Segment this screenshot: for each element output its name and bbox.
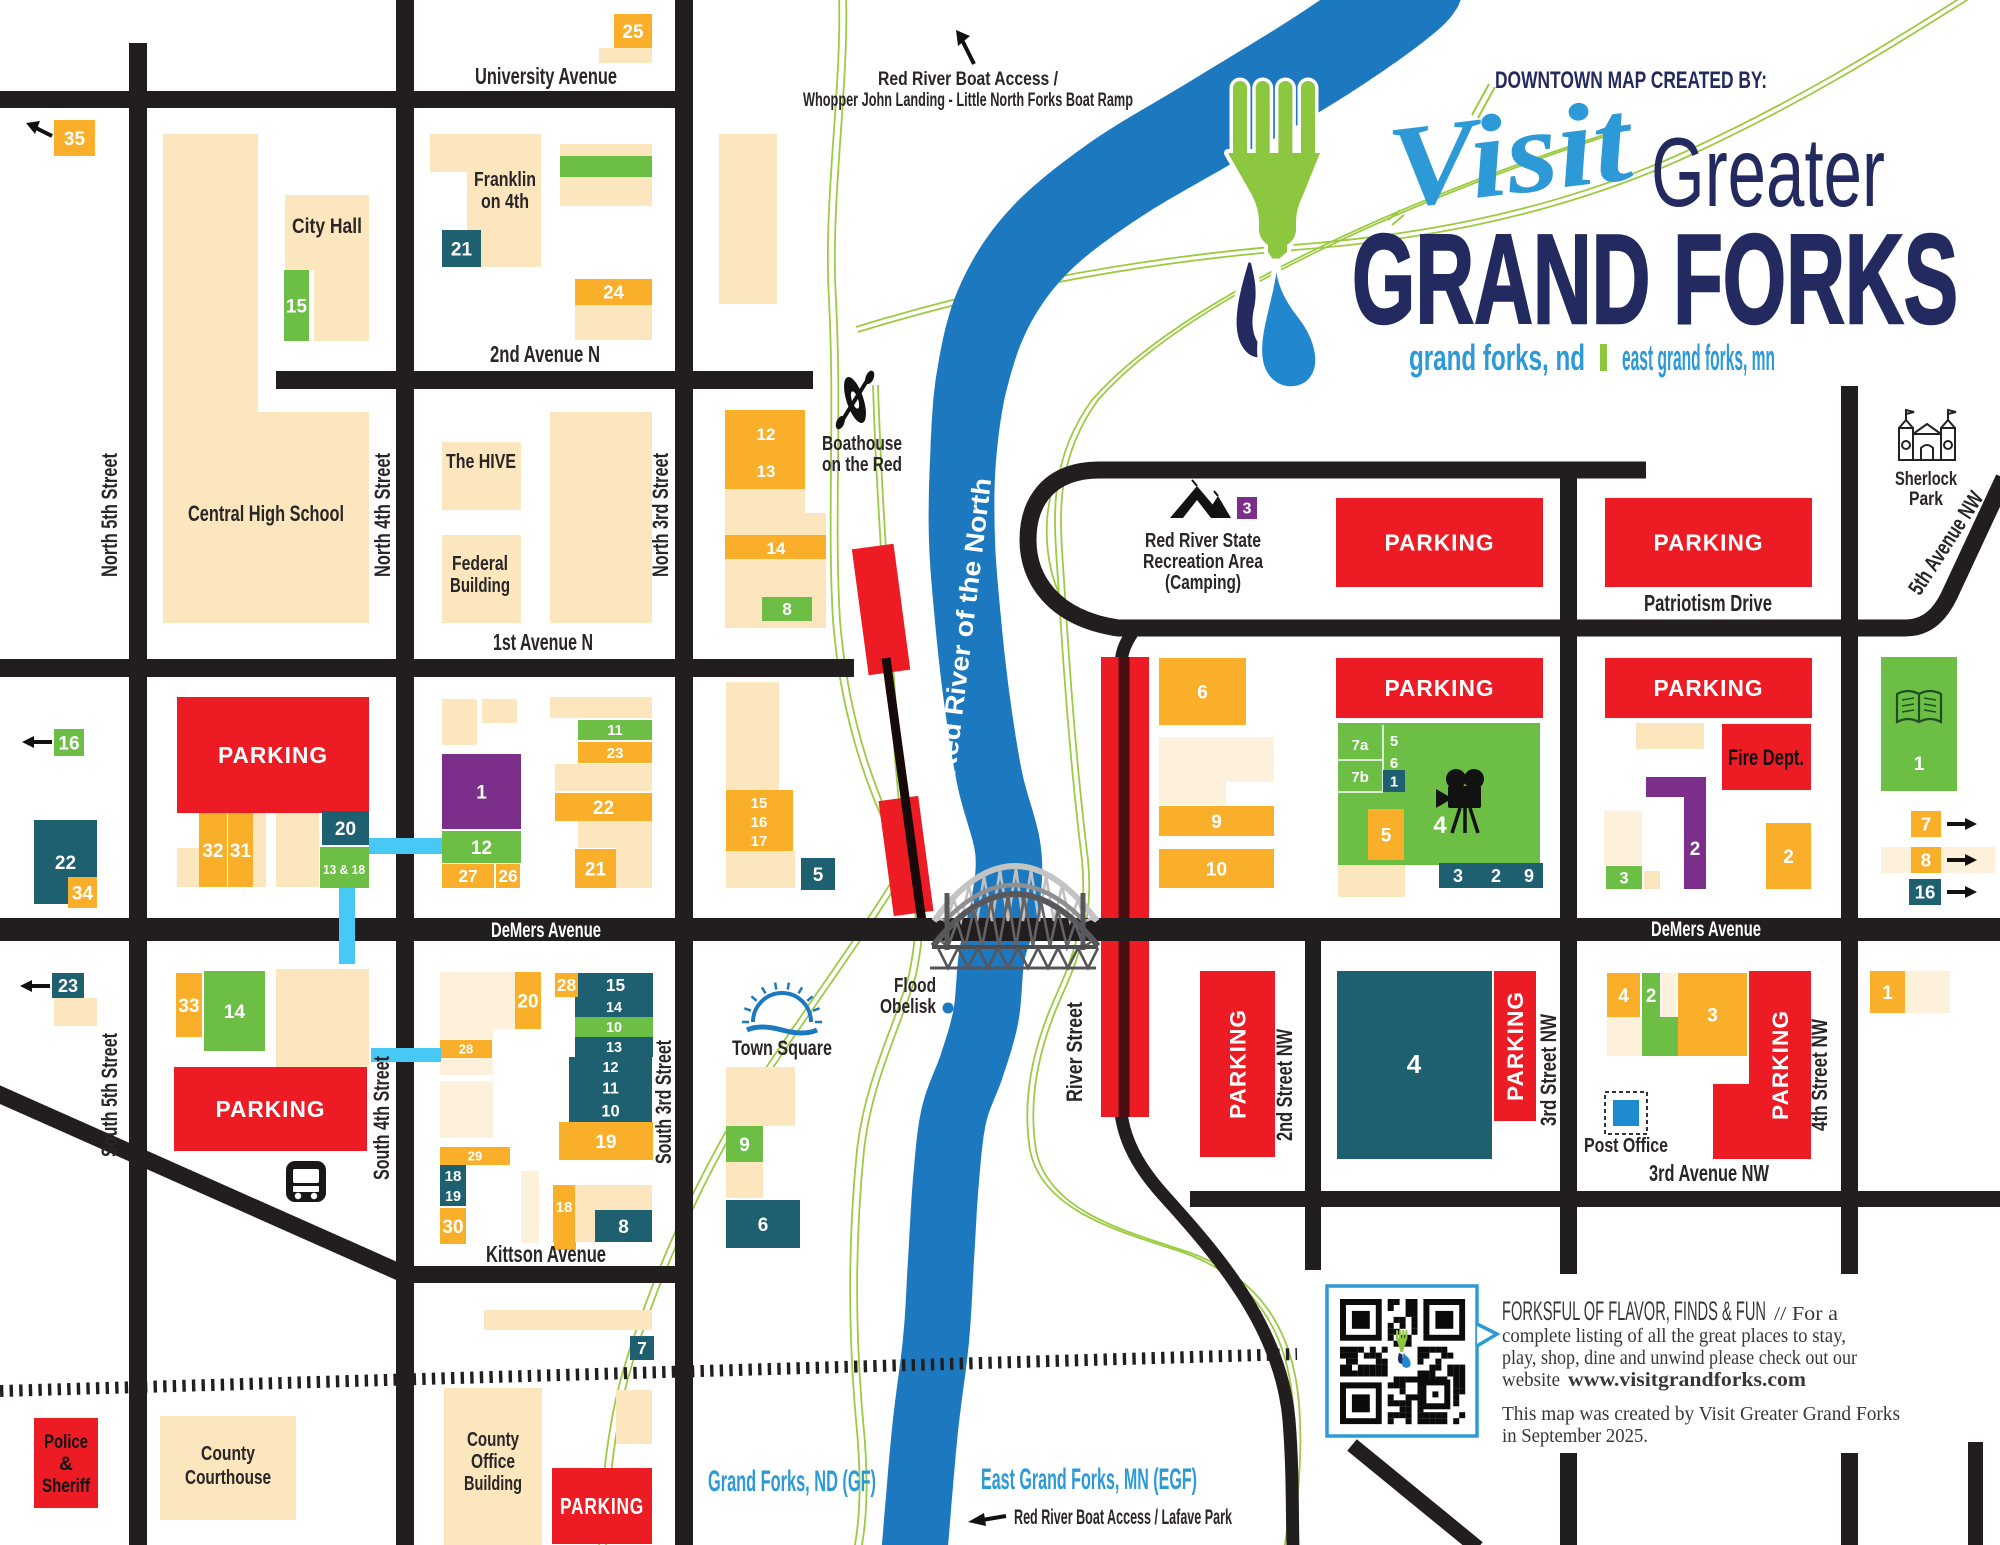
svg-text:7: 7 — [637, 1338, 647, 1358]
svg-text:South 5th Street: South 5th Street — [97, 1033, 122, 1157]
svg-text:30: 30 — [442, 1217, 463, 1238]
svg-text:12: 12 — [602, 1060, 618, 1076]
svg-text:Obelisk: Obelisk — [880, 996, 937, 1018]
svg-text:website: website — [1502, 1369, 1560, 1391]
svg-text:8: 8 — [618, 1217, 629, 1238]
svg-text:6: 6 — [1197, 682, 1208, 703]
svg-text:3: 3 — [1243, 501, 1252, 518]
svg-text:34: 34 — [72, 883, 94, 904]
svg-text:16: 16 — [751, 814, 768, 831]
svg-text:www.visitgrandforks.com: www.visitgrandforks.com — [1568, 1369, 1806, 1391]
svg-text:4th Street NW: 4th Street NW — [1807, 1019, 1832, 1131]
svg-text:Red River State: Red River State — [1145, 530, 1261, 552]
svg-text:2: 2 — [1646, 986, 1657, 1007]
svg-text:11: 11 — [607, 723, 622, 739]
svg-text:University Avenue: University Avenue — [475, 63, 617, 89]
svg-text:9: 9 — [739, 1135, 750, 1156]
svg-text:2nd Avenue N: 2nd Avenue N — [490, 341, 600, 367]
svg-text:in September 2025.: in September 2025. — [1502, 1425, 1648, 1447]
svg-text:15: 15 — [751, 795, 768, 812]
svg-text:32: 32 — [202, 841, 223, 862]
svg-text:PARKING: PARKING — [1226, 1009, 1251, 1119]
svg-text:9: 9 — [1211, 812, 1222, 833]
svg-text:Police: Police — [44, 1432, 88, 1453]
svg-text:8: 8 — [1921, 850, 1931, 871]
svg-text:2: 2 — [1783, 847, 1794, 868]
svg-text:9: 9 — [1524, 866, 1534, 886]
svg-text:10: 10 — [1206, 859, 1227, 880]
svg-text:Fire Dept.: Fire Dept. — [1728, 745, 1804, 770]
svg-text:The HIVE: The HIVE — [446, 451, 516, 473]
svg-text:13 & 18: 13 & 18 — [323, 862, 365, 877]
svg-text:PARKING: PARKING — [1654, 530, 1764, 556]
svg-text:Federal: Federal — [452, 553, 508, 575]
svg-text:PARKING: PARKING — [1768, 1010, 1793, 1120]
svg-text:County: County — [201, 1443, 256, 1465]
svg-text:12: 12 — [471, 838, 492, 859]
svg-text:DeMers Avenue: DeMers Avenue — [491, 919, 601, 942]
svg-text:South 3rd Street: South 3rd Street — [651, 1040, 676, 1164]
svg-text:10: 10 — [606, 1020, 622, 1036]
svg-text:North 3rd Street: North 3rd Street — [648, 453, 673, 577]
svg-text:PARKING: PARKING — [1503, 991, 1528, 1101]
svg-text:PARKING: PARKING — [560, 1493, 644, 1519]
svg-text:11: 11 — [602, 1081, 619, 1098]
svg-text:14: 14 — [767, 539, 786, 558]
svg-text:Kittson Avenue: Kittson Avenue — [486, 1241, 606, 1267]
svg-text:28: 28 — [459, 1042, 473, 1057]
svg-text:14: 14 — [606, 1000, 622, 1016]
svg-text:25: 25 — [622, 22, 644, 43]
svg-text:1: 1 — [1914, 754, 1925, 775]
svg-text:20: 20 — [335, 819, 356, 840]
svg-text:31: 31 — [230, 841, 252, 862]
svg-text:&: & — [59, 1454, 73, 1475]
svg-text:Town Square: Town Square — [732, 1037, 832, 1060]
svg-text:North 5th Street: North 5th Street — [97, 453, 122, 577]
svg-text:3: 3 — [1707, 1005, 1718, 1026]
svg-text:7: 7 — [1921, 814, 1931, 835]
svg-text:Park: Park — [1909, 489, 1943, 510]
svg-text:21: 21 — [585, 859, 607, 880]
svg-text:Red River Boat Access /: Red River Boat Access / — [878, 69, 1059, 90]
svg-text:8: 8 — [782, 599, 792, 619]
svg-text:(Camping): (Camping) — [1165, 572, 1241, 594]
svg-text:PARKING: PARKING — [216, 1096, 326, 1122]
svg-text:1: 1 — [1882, 983, 1893, 1004]
svg-text:21: 21 — [451, 239, 473, 260]
svg-text:2: 2 — [1690, 839, 1701, 860]
svg-text:This map was created by Visit: This map was created by Visit Greater Gr… — [1502, 1403, 1900, 1425]
svg-text:6: 6 — [1390, 755, 1398, 772]
svg-text:7a: 7a — [1352, 737, 1369, 754]
svg-text:Building: Building — [464, 1473, 522, 1495]
svg-text:20: 20 — [517, 991, 538, 1012]
svg-text:River Street: River Street — [1062, 1001, 1087, 1102]
svg-text:Post Office: Post Office — [1584, 1135, 1668, 1157]
svg-text:18: 18 — [556, 1199, 573, 1216]
svg-text:18: 18 — [445, 1168, 462, 1185]
svg-text:Sherlock: Sherlock — [1895, 469, 1957, 490]
svg-text:16: 16 — [1915, 882, 1936, 903]
svg-text:22: 22 — [55, 853, 76, 874]
svg-text:// For a: // For a — [1774, 1303, 1838, 1325]
svg-text:23: 23 — [607, 745, 624, 762]
svg-text:PARKING: PARKING — [1385, 675, 1495, 701]
svg-text:7b: 7b — [1351, 769, 1369, 786]
svg-text:5: 5 — [1381, 825, 1392, 846]
svg-text:10: 10 — [601, 1101, 619, 1120]
svg-text:Whopper John Landing - Little: Whopper John Landing - Little North Fork… — [803, 90, 1133, 111]
svg-text:on 4th: on 4th — [481, 191, 529, 213]
svg-text:24: 24 — [603, 282, 624, 303]
svg-text:15: 15 — [606, 975, 626, 995]
svg-text:35: 35 — [64, 129, 86, 150]
svg-text:23: 23 — [58, 976, 78, 996]
svg-text:14: 14 — [224, 1002, 246, 1023]
svg-text:County: County — [467, 1429, 520, 1451]
svg-text:play, shop, dine and unwind pl: play, shop, dine and unwind please check… — [1502, 1347, 1857, 1369]
svg-text:complete listing of all the gr: complete listing of all the great places… — [1502, 1325, 1846, 1347]
svg-text:26: 26 — [498, 866, 517, 886]
svg-text:Grand Forks, ND (GF): Grand Forks, ND (GF) — [708, 1465, 876, 1498]
svg-text:16: 16 — [58, 733, 79, 754]
svg-text:3: 3 — [1453, 866, 1463, 886]
svg-text:Building: Building — [450, 575, 510, 597]
svg-text:29: 29 — [468, 1149, 482, 1164]
svg-text:12: 12 — [757, 425, 776, 444]
svg-text:1st Avenue N: 1st Avenue N — [493, 629, 593, 655]
svg-text:Patriotism Drive: Patriotism Drive — [1644, 590, 1772, 616]
svg-text:13: 13 — [757, 462, 776, 481]
svg-text:GRAND FORKS: GRAND FORKS — [1352, 208, 1958, 350]
svg-text:DeMers Avenue: DeMers Avenue — [1651, 918, 1761, 941]
svg-text:Office: Office — [471, 1451, 515, 1473]
svg-text:grand forks, nd: grand forks, nd — [1409, 337, 1585, 378]
svg-text:2nd Street NW: 2nd Street NW — [1272, 1029, 1297, 1141]
svg-text:5: 5 — [1390, 733, 1398, 750]
svg-text:3rd Street NW: 3rd Street NW — [1536, 1014, 1561, 1126]
svg-text:1: 1 — [1390, 773, 1398, 790]
svg-text:3rd Avenue NW: 3rd Avenue NW — [1649, 1160, 1769, 1186]
svg-text:PARKING: PARKING — [1654, 675, 1764, 701]
svg-text:5: 5 — [813, 865, 824, 886]
svg-text:27: 27 — [458, 866, 477, 886]
svg-text:3: 3 — [1619, 868, 1628, 887]
svg-text:33: 33 — [178, 996, 199, 1017]
svg-text:Franklin: Franklin — [474, 169, 536, 191]
svg-text:2: 2 — [1491, 866, 1501, 886]
svg-text:22: 22 — [593, 798, 614, 819]
svg-text:4: 4 — [1407, 1049, 1422, 1079]
svg-text:19: 19 — [445, 1189, 461, 1205]
svg-text:on the Red: on the Red — [822, 454, 902, 476]
svg-text:PARKING: PARKING — [218, 742, 328, 768]
svg-text:17: 17 — [751, 833, 768, 850]
svg-text:City Hall: City Hall — [292, 215, 362, 238]
svg-text:Recreation Area: Recreation Area — [1143, 551, 1264, 573]
svg-text:PARKING: PARKING — [1385, 530, 1495, 556]
svg-text:FORKSFUL OF FLAVOR, FINDS & F: FORKSFUL OF FLAVOR, FINDS & FUN — [1502, 1296, 1766, 1326]
svg-text:Courthouse: Courthouse — [185, 1467, 271, 1489]
svg-text:East Grand Forks, MN (EGF): East Grand Forks, MN (EGF) — [981, 1463, 1197, 1496]
svg-text:4: 4 — [1618, 986, 1629, 1007]
svg-text:Boathouse: Boathouse — [822, 433, 902, 455]
svg-text:6: 6 — [758, 1215, 769, 1236]
svg-text:South 4th Street: South 4th Street — [369, 1056, 394, 1180]
svg-text:Red River Boat Access / Lafave: Red River Boat Access / Lafave Park — [1014, 1506, 1232, 1529]
svg-text:19: 19 — [595, 1132, 616, 1153]
svg-text:Central High School: Central High School — [188, 501, 344, 526]
svg-text:Flood: Flood — [894, 975, 936, 997]
svg-text:east grand forks, mn: east grand forks, mn — [1622, 337, 1775, 378]
svg-text:1: 1 — [476, 782, 487, 803]
svg-text:North 4th Street: North 4th Street — [370, 453, 395, 577]
svg-text:15: 15 — [286, 296, 308, 317]
svg-text:13: 13 — [606, 1040, 622, 1056]
svg-text:4: 4 — [1433, 812, 1447, 839]
svg-text:Sheriff: Sheriff — [42, 1476, 91, 1497]
svg-text:28: 28 — [557, 975, 577, 995]
